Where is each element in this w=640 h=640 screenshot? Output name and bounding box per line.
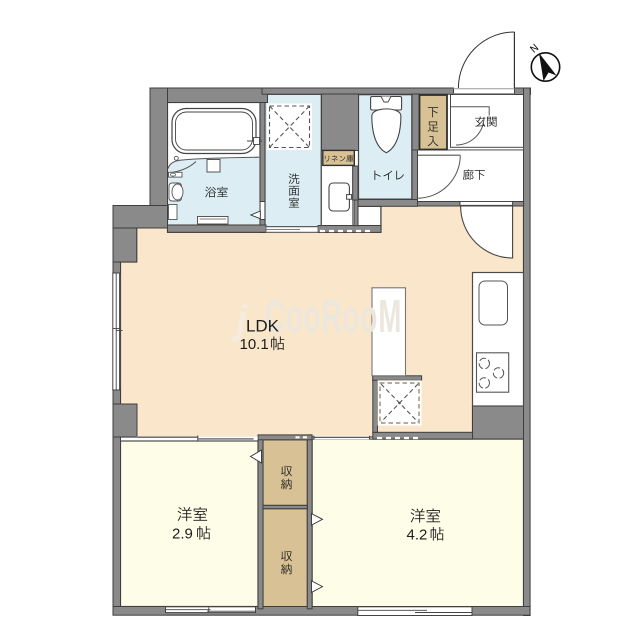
svg-text:4.2: 4.2 — [407, 527, 428, 544]
svg-text:CooRooM: CooRooM — [265, 292, 402, 343]
svg-text:2.9: 2.9 — [172, 526, 193, 543]
svg-text:LDK: LDK — [246, 317, 280, 336]
svg-text:10.1: 10.1 — [240, 336, 269, 353]
